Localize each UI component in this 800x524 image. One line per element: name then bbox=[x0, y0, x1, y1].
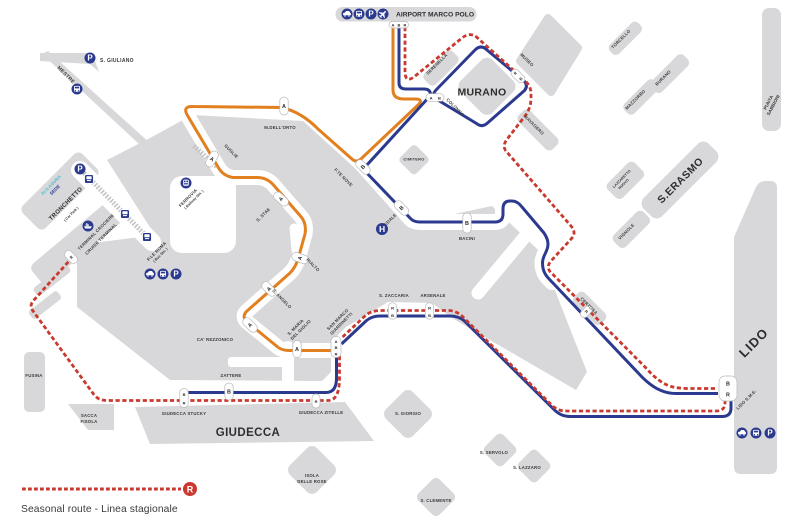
svg-text:BACINI: BACINI bbox=[459, 236, 475, 241]
svg-text:ARSENALE: ARSENALE bbox=[420, 293, 445, 298]
svg-text:R: R bbox=[187, 484, 194, 494]
svg-text:Seasonal route - Linea stagion: Seasonal route - Linea stagionale bbox=[21, 504, 178, 515]
svg-text:S. GIORGIO: S. GIORGIO bbox=[395, 411, 422, 416]
svg-text:ZATTERE: ZATTERE bbox=[221, 373, 242, 378]
svg-text:A: A bbox=[282, 104, 286, 110]
svg-text:FUSINA: FUSINA bbox=[25, 373, 42, 378]
svg-text:GIUDECCA: GIUDECCA bbox=[216, 427, 281, 439]
svg-text:B: B bbox=[428, 313, 431, 318]
svg-text:R: R bbox=[428, 305, 431, 310]
svg-text:R: R bbox=[391, 305, 394, 310]
svg-text:A: A bbox=[392, 22, 395, 27]
svg-text:R: R bbox=[726, 392, 730, 398]
svg-text:DELLE ROSE: DELLE ROSE bbox=[297, 479, 326, 484]
svg-text:GIUDECCA ZITELLE: GIUDECCA ZITELLE bbox=[299, 410, 344, 415]
svg-text:CA' REZZONICO: CA' REZZONICO bbox=[197, 337, 234, 342]
svg-text:B: B bbox=[227, 389, 231, 395]
svg-text:S. CLEMENTE: S. CLEMENTE bbox=[420, 498, 451, 503]
svg-text:CIMITERO: CIMITERO bbox=[403, 157, 424, 162]
svg-text:R: R bbox=[183, 400, 186, 405]
svg-text:S. ZACCARIA: S. ZACCARIA bbox=[379, 293, 409, 298]
svg-text:A: A bbox=[430, 96, 433, 101]
svg-text:SACCA: SACCA bbox=[81, 413, 97, 418]
svg-text:B: B bbox=[183, 392, 186, 397]
svg-text:B: B bbox=[398, 22, 401, 27]
svg-text:R: R bbox=[335, 351, 338, 356]
svg-text:B: B bbox=[726, 382, 730, 388]
svg-text:MURANO: MURANO bbox=[457, 87, 506, 99]
svg-text:S. GIULIANO: S. GIULIANO bbox=[100, 58, 134, 64]
svg-text:S. LAZZARO: S. LAZZARO bbox=[513, 465, 541, 470]
svg-text:B: B bbox=[438, 96, 441, 101]
svg-text:FISOLA: FISOLA bbox=[81, 419, 98, 424]
svg-text:B: B bbox=[335, 345, 338, 350]
svg-text:GIUDECCA STUCKY: GIUDECCA STUCKY bbox=[162, 411, 207, 416]
svg-text:S. SERVOLO: S. SERVOLO bbox=[480, 450, 509, 455]
svg-text:AIRPORT MARCO POLO: AIRPORT MARCO POLO bbox=[396, 11, 474, 18]
svg-text:B: B bbox=[391, 313, 394, 318]
svg-text:A: A bbox=[335, 339, 338, 344]
svg-text:A: A bbox=[295, 347, 299, 353]
svg-text:B: B bbox=[465, 221, 469, 227]
svg-text:ISOLA: ISOLA bbox=[305, 473, 319, 478]
svg-text:R: R bbox=[315, 399, 318, 404]
svg-text:H: H bbox=[379, 224, 385, 234]
svg-text:R: R bbox=[404, 22, 407, 27]
svg-text:M.DELL'ORTO: M.DELL'ORTO bbox=[264, 125, 296, 130]
